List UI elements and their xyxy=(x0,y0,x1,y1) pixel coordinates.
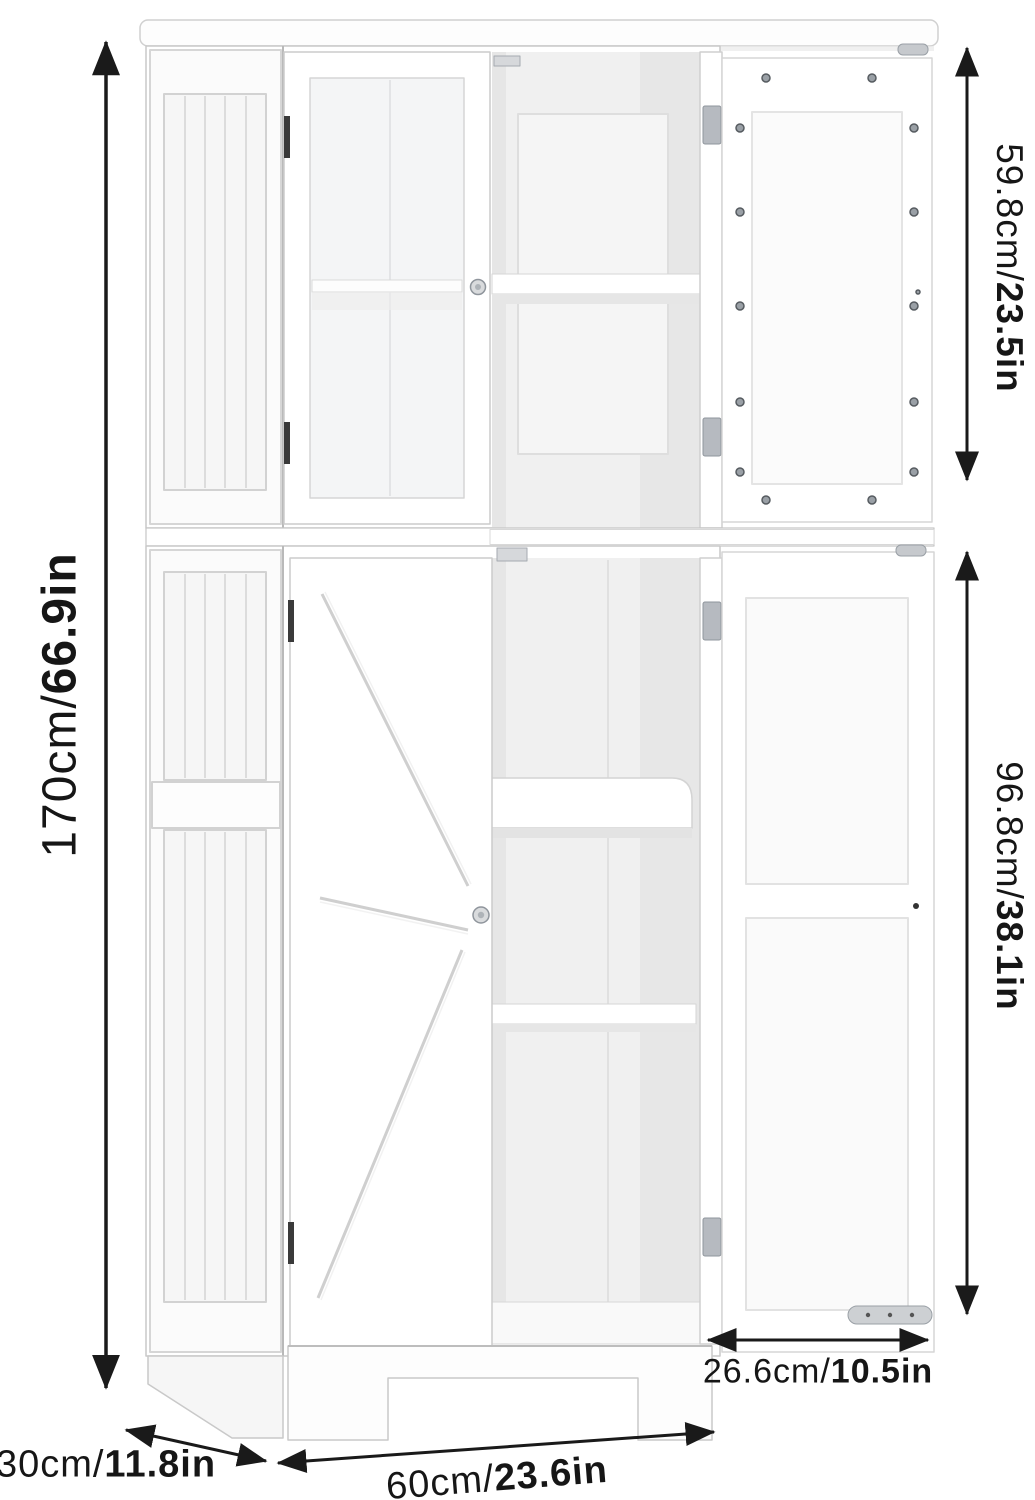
front-plinth xyxy=(288,1346,712,1440)
cam-lock-dot xyxy=(913,903,919,909)
lower-cm-text: 96.8cm/ xyxy=(989,761,1030,900)
hinge-slot-icon xyxy=(288,1222,294,1264)
door-width-dimension-label: 26.6cm/10.5in xyxy=(703,1353,933,1392)
upper-section-dimension-label: 59.8cm/23.5in xyxy=(988,143,1030,393)
depth-in-text: 11.8in xyxy=(104,1444,216,1486)
corner-bracket-icon xyxy=(898,44,928,55)
upper-shelf-shadow xyxy=(492,294,700,304)
depth-cm-text: 30cm/ xyxy=(0,1444,104,1486)
upper-right-stile xyxy=(700,52,722,528)
cabinet-floor xyxy=(492,1302,700,1344)
upper-side-panel xyxy=(150,50,281,524)
depth-dimension-label: 30cm/11.8in xyxy=(0,1444,216,1487)
width-in-text: 23.6in xyxy=(493,1449,610,1500)
upper-open-door xyxy=(722,44,932,522)
upper-glass-door xyxy=(284,52,490,524)
upper-shelf xyxy=(492,274,700,294)
lower-open-door xyxy=(722,545,934,1352)
hinge-icon xyxy=(703,1218,721,1256)
upper-open-compartment xyxy=(492,52,700,528)
door-lower-recess xyxy=(746,918,908,1310)
lower-side-panel xyxy=(150,550,281,1352)
door-width-in-text: 10.5in xyxy=(831,1353,933,1391)
upper-in-text: 23.5in xyxy=(989,282,1030,393)
height-dimension-label: 170cm/66.9in xyxy=(33,552,88,857)
lower-section-dimension-label: 96.8cm/38.1in xyxy=(988,761,1030,1011)
hinge-icon xyxy=(703,418,721,456)
width-cm-text: 60cm/ xyxy=(385,1458,496,1500)
unit-seam xyxy=(146,528,934,546)
height-cm-text: 170cm/ xyxy=(34,694,87,857)
door-upper-recess xyxy=(746,598,908,884)
hinge-slot-icon xyxy=(284,422,290,464)
height-in-text: 66.9in xyxy=(34,552,87,694)
hinge-icon xyxy=(703,602,721,640)
corner-bracket-icon xyxy=(896,545,926,556)
door-width-cm-text: 26.6cm/ xyxy=(703,1353,831,1391)
lower-barn-door xyxy=(288,558,492,1346)
cabinet-illustration xyxy=(0,0,1035,1500)
pullout-shelf xyxy=(490,778,692,828)
glass-back-recess xyxy=(752,112,902,484)
magnetic-catch xyxy=(494,56,520,66)
shelf-through-glass xyxy=(312,280,462,292)
lower-in-text: 38.1in xyxy=(989,900,1030,1011)
lower-shelf xyxy=(490,1004,696,1024)
side-mid-rail xyxy=(152,782,280,828)
hinge-slot-icon xyxy=(288,600,294,642)
cabinet-base xyxy=(148,1346,712,1440)
side-plinth xyxy=(148,1356,283,1438)
upper-cm-text: 59.8cm/ xyxy=(989,143,1030,282)
hinge-icon xyxy=(703,106,721,144)
product-dimension-diagram: 170cm/66.9in 59.8cm/23.5in 96.8cm/38.1in… xyxy=(0,0,1035,1500)
magnetic-catch xyxy=(497,548,527,561)
lower-right-stile xyxy=(700,558,722,1344)
cabinet xyxy=(140,20,938,1440)
lower-open-compartment xyxy=(490,548,700,1344)
hinge-slot-icon xyxy=(284,116,290,158)
